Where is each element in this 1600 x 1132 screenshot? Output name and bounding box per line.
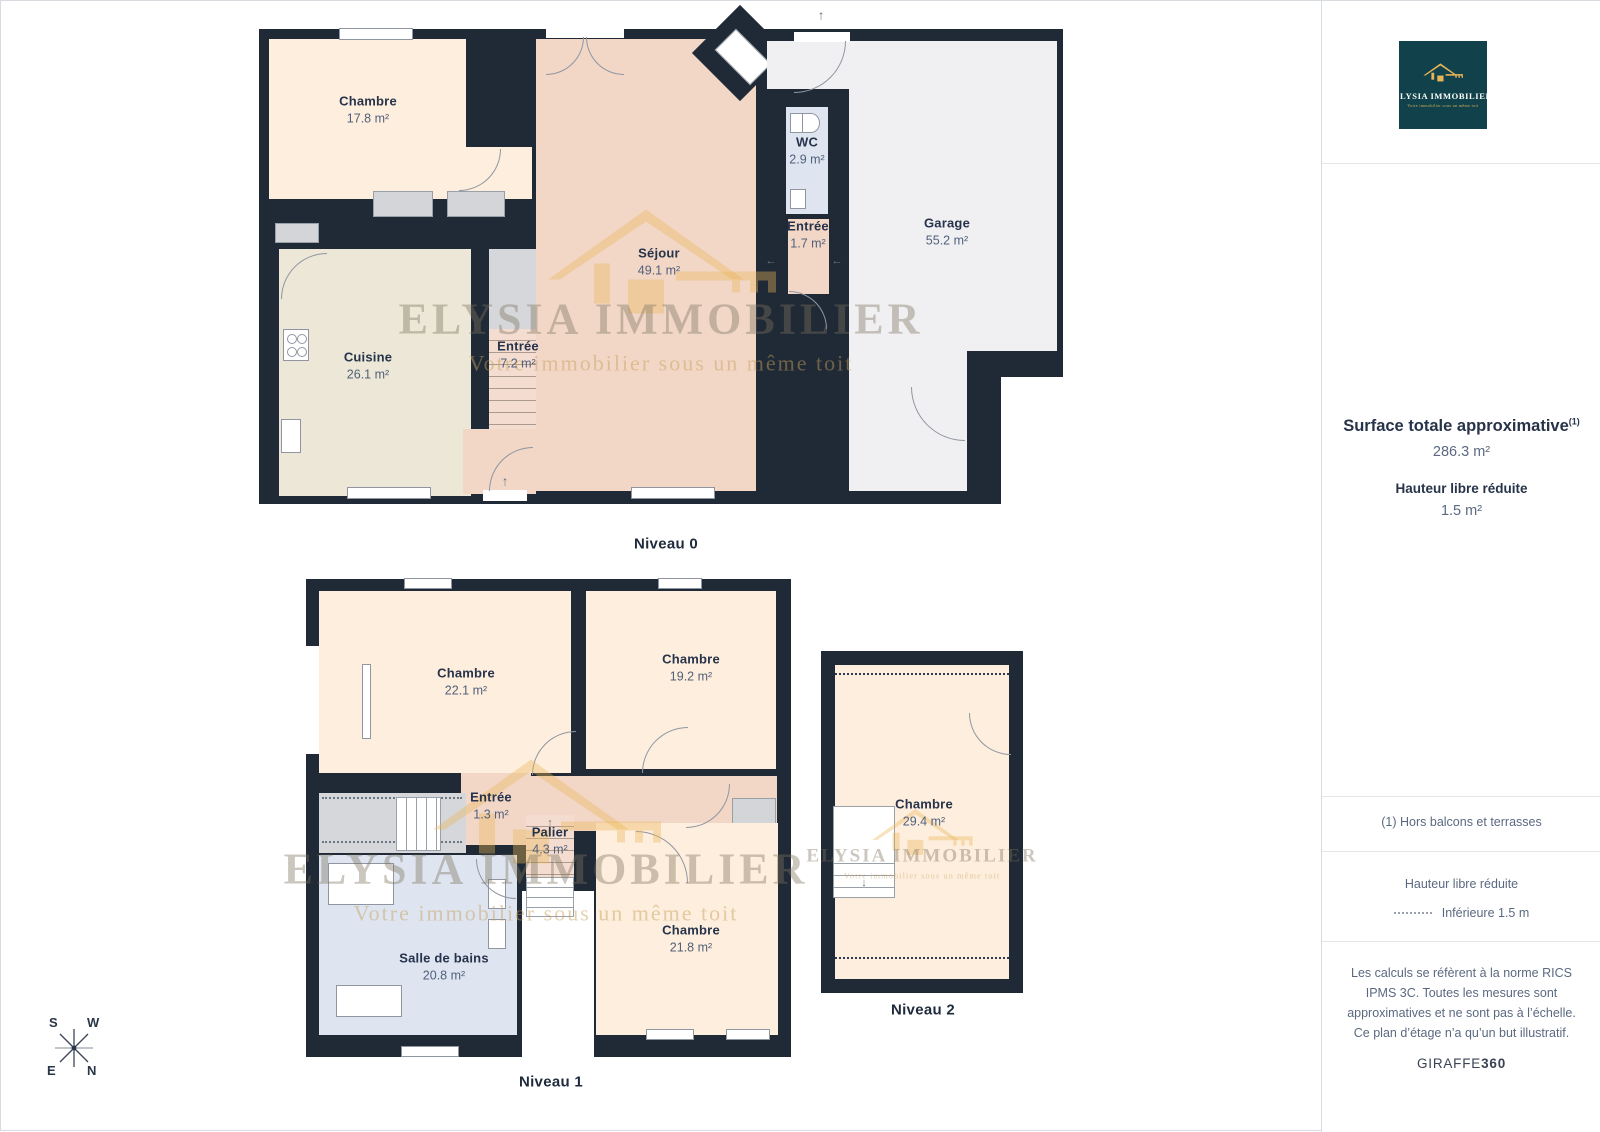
reduced-height-line bbox=[835, 957, 1009, 959]
stairs bbox=[526, 877, 574, 917]
stairs bbox=[396, 797, 441, 851]
surface-total-title: Surface totale approximative(1) bbox=[1322, 416, 1600, 436]
room-label-chambre-218: Chambre21.8 m² bbox=[662, 922, 720, 955]
compass-e: E bbox=[47, 1063, 56, 1078]
disclaimer-text: Les calculs se réfèrent à la norme RICS … bbox=[1344, 963, 1579, 1043]
exterior-cutout bbox=[1001, 377, 1063, 504]
reduced-height-value: 1.5 m² bbox=[1322, 503, 1600, 519]
reduced-height-line bbox=[322, 797, 462, 799]
divider bbox=[1322, 851, 1600, 852]
sink-counter-icon bbox=[328, 863, 394, 905]
dotted-line-sample bbox=[1394, 912, 1432, 914]
reduced-height-title: Hauteur libre réduite bbox=[1322, 481, 1600, 496]
logo-tagline: Votre immobilier sous un même toit bbox=[1407, 103, 1478, 108]
reduced-height-line bbox=[835, 673, 1009, 675]
footnote: (1) Hors balcons et terrasses bbox=[1322, 815, 1600, 829]
room-label-chambre-294: Chambre29.4 m² bbox=[895, 796, 953, 829]
footnote-marker: (1) bbox=[1569, 416, 1580, 426]
door-arc bbox=[789, 291, 827, 329]
giraffe360-brand: GIRAFFE360 bbox=[1322, 1056, 1600, 1071]
reduced-height-line bbox=[322, 841, 462, 843]
divider bbox=[1322, 163, 1600, 164]
window bbox=[646, 1029, 694, 1040]
garage-entry-arrow: ↑ bbox=[818, 8, 825, 23]
room-label-entree-72: Entrée7.2 m² bbox=[497, 338, 539, 371]
floorplan-page: ↑ ← ← Chambre17.8 m² Cuisine26.1 m² Entr… bbox=[0, 0, 1600, 1131]
legend-row: Inférieure 1.5 m bbox=[1322, 901, 1600, 920]
sink-icon bbox=[790, 189, 806, 209]
direction-arrow: ← bbox=[766, 255, 777, 267]
divider bbox=[1322, 796, 1600, 797]
sidebar: ELYSIA IMMOBILIER Votre immobilier sous … bbox=[1321, 1, 1600, 1132]
logo-title: ELYSIA IMMOBILIER bbox=[1394, 91, 1492, 101]
floor-label-niveau-1: Niveau 1 bbox=[519, 1074, 583, 1091]
direction-arrow: ← bbox=[832, 255, 843, 267]
stairs-arrow: ↓ bbox=[861, 877, 867, 889]
stove-icon bbox=[283, 329, 309, 361]
room-label-salle-de-bains: Salle de bains20.8 m² bbox=[399, 950, 489, 983]
compass: S W E N bbox=[35, 1009, 113, 1087]
entrance-opening bbox=[483, 490, 527, 501]
wardrobe-area bbox=[319, 793, 466, 853]
wardrobe bbox=[373, 191, 433, 217]
toilet-icon bbox=[802, 113, 820, 133]
floorplan-niveau-2: ↓ Chambre29.4 m² bbox=[821, 651, 1023, 993]
window bbox=[401, 1046, 459, 1057]
room-label-chambre: Chambre17.8 m² bbox=[339, 93, 397, 126]
window bbox=[339, 28, 413, 40]
room-label-garage: Garage55.2 m² bbox=[924, 215, 970, 248]
legend-title: Hauteur libre réduite bbox=[1322, 877, 1600, 891]
fridge-icon bbox=[281, 419, 301, 453]
legend-item-label: Inférieure 1.5 m bbox=[1442, 906, 1530, 920]
floorplan-niveau-1: ↑ Chambre22.1 m² Chambre19.2 m² Entrée1.… bbox=[306, 579, 791, 1057]
floor-label-niveau-2: Niveau 2 bbox=[891, 1002, 955, 1019]
room-label-entree-13: Entrée1.3 m² bbox=[470, 789, 512, 822]
shower-icon bbox=[488, 919, 506, 949]
window bbox=[404, 578, 452, 589]
agency-logo: ELYSIA IMMOBILIER Votre immobilier sous … bbox=[1399, 41, 1487, 129]
window bbox=[658, 578, 702, 589]
window bbox=[631, 487, 715, 499]
wardrobe bbox=[275, 223, 319, 243]
divider bbox=[1322, 941, 1600, 942]
room-label-chambre-221: Chambre22.1 m² bbox=[437, 665, 495, 698]
compass-s: S bbox=[49, 1015, 58, 1030]
floor-label-niveau-0: Niveau 0 bbox=[634, 536, 698, 553]
room-label-wc: WC2.9 m² bbox=[789, 134, 824, 167]
room-label-palier: Palier4.3 m² bbox=[532, 824, 569, 857]
window bbox=[726, 1029, 770, 1040]
floorplan-niveau-0: ↑ ← ← Chambre17.8 m² Cuisine26.1 m² Entr… bbox=[259, 29, 1063, 504]
room-label-chambre-192: Chambre19.2 m² bbox=[662, 651, 720, 684]
window bbox=[362, 664, 371, 739]
room-label-cuisine: Cuisine26.1 m² bbox=[344, 349, 392, 382]
room-label-sejour: Séjour49.1 m² bbox=[638, 245, 680, 278]
window bbox=[347, 487, 431, 499]
compass-w: W bbox=[87, 1015, 99, 1030]
room-label-entree-17: Entrée1.7 m² bbox=[787, 218, 829, 251]
wardrobe bbox=[447, 191, 505, 217]
entrance-arrow: ↑ bbox=[502, 474, 509, 489]
surface-total-value: 286.3 m² bbox=[1322, 444, 1600, 460]
bathtub-icon bbox=[336, 985, 402, 1017]
logo-house-icon bbox=[1421, 62, 1465, 88]
compass-n: N bbox=[87, 1063, 96, 1078]
